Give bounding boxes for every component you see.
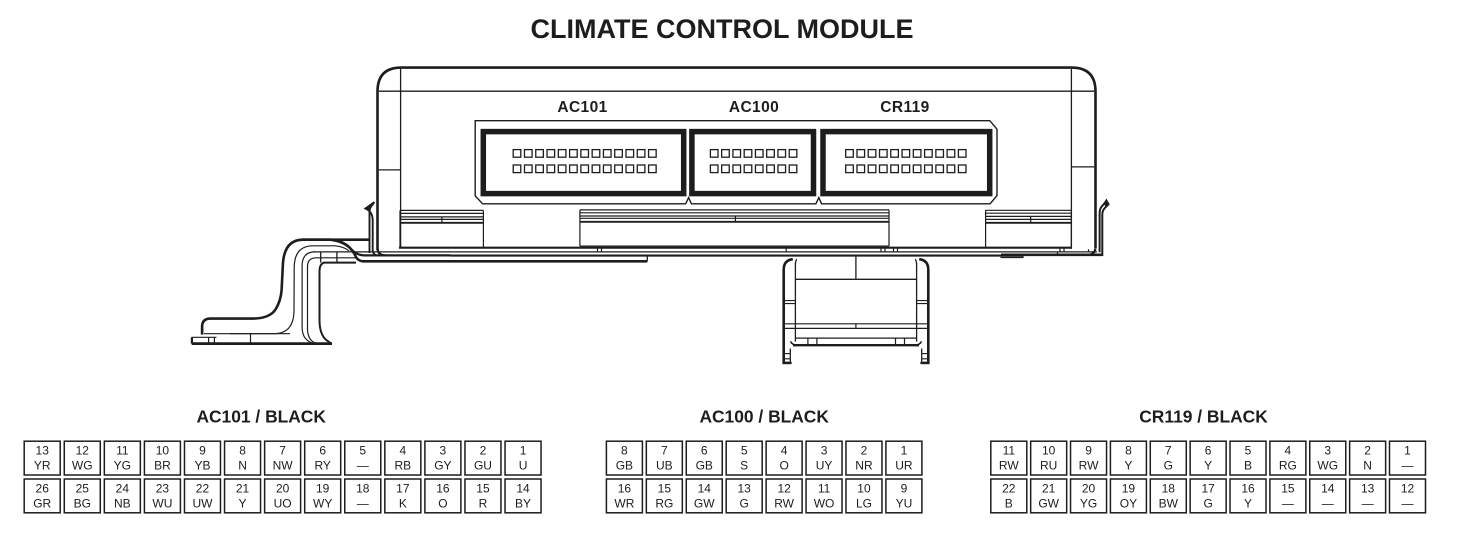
svg-text:7: 7 <box>1165 444 1172 458</box>
svg-text:WR: WR <box>614 496 634 510</box>
svg-text:6: 6 <box>319 444 326 458</box>
svg-text:B: B <box>1244 459 1252 473</box>
svg-text:G: G <box>1203 496 1212 510</box>
svg-text:RW: RW <box>774 496 794 510</box>
svg-text:14: 14 <box>1321 482 1335 496</box>
svg-text:YG: YG <box>114 459 131 473</box>
svg-text:13: 13 <box>36 444 50 458</box>
svg-text:Y: Y <box>1244 496 1252 510</box>
svg-text:18: 18 <box>1162 482 1176 496</box>
svg-text:8: 8 <box>1125 444 1132 458</box>
svg-text:AC100: AC100 <box>729 99 779 116</box>
svg-text:—: — <box>1362 496 1374 510</box>
svg-text:—: — <box>357 496 369 510</box>
svg-text:BW: BW <box>1159 496 1179 510</box>
svg-text:CLIMATE CONTROL MODULE: CLIMATE CONTROL MODULE <box>531 14 914 44</box>
svg-text:15: 15 <box>658 482 672 496</box>
svg-text:9: 9 <box>199 444 206 458</box>
svg-text:CR119 / BLACK: CR119 / BLACK <box>1139 406 1268 426</box>
svg-text:NB: NB <box>114 496 131 510</box>
svg-text:R: R <box>479 496 488 510</box>
svg-text:—: — <box>1402 459 1414 473</box>
svg-text:RB: RB <box>394 459 411 473</box>
svg-text:Y: Y <box>1204 459 1212 473</box>
svg-text:21: 21 <box>1042 482 1056 496</box>
svg-text:5: 5 <box>741 444 748 458</box>
svg-text:15: 15 <box>1281 482 1295 496</box>
svg-text:14: 14 <box>516 482 530 496</box>
svg-text:YR: YR <box>34 459 51 473</box>
svg-text:G: G <box>1164 459 1173 473</box>
svg-text:24: 24 <box>116 482 130 496</box>
svg-text:RG: RG <box>1279 459 1297 473</box>
svg-text:WU: WU <box>152 496 172 510</box>
svg-text:11: 11 <box>116 444 129 458</box>
svg-text:12: 12 <box>777 482 791 496</box>
svg-text:3: 3 <box>821 444 828 458</box>
svg-text:14: 14 <box>698 482 712 496</box>
svg-text:7: 7 <box>661 444 668 458</box>
svg-text:O: O <box>779 459 788 473</box>
svg-text:N: N <box>1363 459 1372 473</box>
svg-text:AC100 / BLACK: AC100 / BLACK <box>699 406 829 426</box>
svg-text:RG: RG <box>655 496 673 510</box>
svg-text:—: — <box>1282 496 1294 510</box>
svg-text:15: 15 <box>476 482 490 496</box>
svg-text:YB: YB <box>194 459 210 473</box>
svg-text:RY: RY <box>314 459 330 473</box>
svg-text:17: 17 <box>396 482 410 496</box>
svg-text:NR: NR <box>855 459 873 473</box>
svg-text:18: 18 <box>356 482 370 496</box>
svg-text:8: 8 <box>621 444 628 458</box>
svg-text:G: G <box>740 496 749 510</box>
svg-text:10: 10 <box>857 482 871 496</box>
svg-text:AC101: AC101 <box>557 99 607 116</box>
svg-text:23: 23 <box>156 482 170 496</box>
svg-text:RW: RW <box>999 459 1019 473</box>
svg-text:Y: Y <box>1124 459 1132 473</box>
svg-text:22: 22 <box>1002 482 1016 496</box>
svg-text:8: 8 <box>239 444 246 458</box>
svg-text:9: 9 <box>901 482 908 496</box>
svg-text:GB: GB <box>616 459 633 473</box>
svg-text:WG: WG <box>72 459 93 473</box>
svg-text:WO: WO <box>814 496 835 510</box>
svg-text:1: 1 <box>1404 444 1411 458</box>
svg-text:12: 12 <box>1401 482 1415 496</box>
svg-text:OY: OY <box>1120 496 1137 510</box>
svg-text:UY: UY <box>816 459 833 473</box>
svg-text:YU: YU <box>896 496 913 510</box>
svg-text:1: 1 <box>901 444 908 458</box>
svg-text:16: 16 <box>436 482 450 496</box>
svg-text:N: N <box>238 459 247 473</box>
svg-text:6: 6 <box>1205 444 1212 458</box>
svg-text:NW: NW <box>273 459 294 473</box>
svg-text:O: O <box>438 496 447 510</box>
svg-text:Y: Y <box>239 496 247 510</box>
svg-text:9: 9 <box>1085 444 1092 458</box>
svg-text:4: 4 <box>399 444 406 458</box>
svg-text:4: 4 <box>781 444 788 458</box>
svg-text:5: 5 <box>359 444 366 458</box>
svg-text:10: 10 <box>156 444 170 458</box>
svg-text:UO: UO <box>274 496 292 510</box>
svg-text:S: S <box>740 459 748 473</box>
svg-text:12: 12 <box>76 444 90 458</box>
svg-text:2: 2 <box>861 444 868 458</box>
svg-text:17: 17 <box>1201 482 1215 496</box>
svg-text:11: 11 <box>1003 444 1016 458</box>
svg-text:GR: GR <box>33 496 51 510</box>
svg-text:26: 26 <box>36 482 50 496</box>
svg-text:2: 2 <box>480 444 487 458</box>
svg-text:16: 16 <box>1241 482 1255 496</box>
svg-text:4: 4 <box>1285 444 1292 458</box>
svg-text:19: 19 <box>1122 482 1136 496</box>
svg-text:GU: GU <box>474 459 492 473</box>
svg-text:—: — <box>1402 496 1414 510</box>
svg-text:20: 20 <box>1082 482 1096 496</box>
svg-text:6: 6 <box>701 444 708 458</box>
svg-text:UR: UR <box>895 459 913 473</box>
svg-text:WG: WG <box>1317 459 1338 473</box>
svg-text:UW: UW <box>192 496 213 510</box>
svg-text:UB: UB <box>656 459 673 473</box>
svg-text:CR119: CR119 <box>880 99 929 116</box>
svg-text:U: U <box>519 459 528 473</box>
svg-text:13: 13 <box>738 482 752 496</box>
svg-text:2: 2 <box>1364 444 1371 458</box>
svg-text:YG: YG <box>1080 496 1097 510</box>
svg-text:20: 20 <box>276 482 290 496</box>
svg-text:5: 5 <box>1245 444 1252 458</box>
svg-text:16: 16 <box>618 482 632 496</box>
svg-text:AC101 / BLACK: AC101 / BLACK <box>196 406 326 426</box>
svg-text:GB: GB <box>696 459 713 473</box>
svg-text:10: 10 <box>1042 444 1056 458</box>
svg-text:GY: GY <box>434 459 451 473</box>
svg-text:BY: BY <box>515 496 531 510</box>
svg-text:25: 25 <box>76 482 90 496</box>
svg-text:WY: WY <box>313 496 332 510</box>
svg-text:3: 3 <box>440 444 447 458</box>
svg-text:11: 11 <box>818 482 831 496</box>
svg-text:19: 19 <box>316 482 330 496</box>
svg-text:—: — <box>1322 496 1334 510</box>
svg-text:21: 21 <box>236 482 250 496</box>
svg-text:K: K <box>399 496 407 510</box>
svg-text:7: 7 <box>279 444 286 458</box>
svg-text:1: 1 <box>520 444 527 458</box>
svg-text:GW: GW <box>694 496 715 510</box>
svg-text:B: B <box>1005 496 1013 510</box>
svg-text:LG: LG <box>856 496 872 510</box>
svg-text:3: 3 <box>1324 444 1331 458</box>
svg-text:GW: GW <box>1038 496 1059 510</box>
svg-text:BG: BG <box>74 496 91 510</box>
svg-text:RW: RW <box>1079 459 1099 473</box>
svg-text:13: 13 <box>1361 482 1375 496</box>
svg-text:BR: BR <box>154 459 171 473</box>
svg-text:RU: RU <box>1040 459 1057 473</box>
svg-text:22: 22 <box>196 482 210 496</box>
svg-text:—: — <box>357 459 369 473</box>
